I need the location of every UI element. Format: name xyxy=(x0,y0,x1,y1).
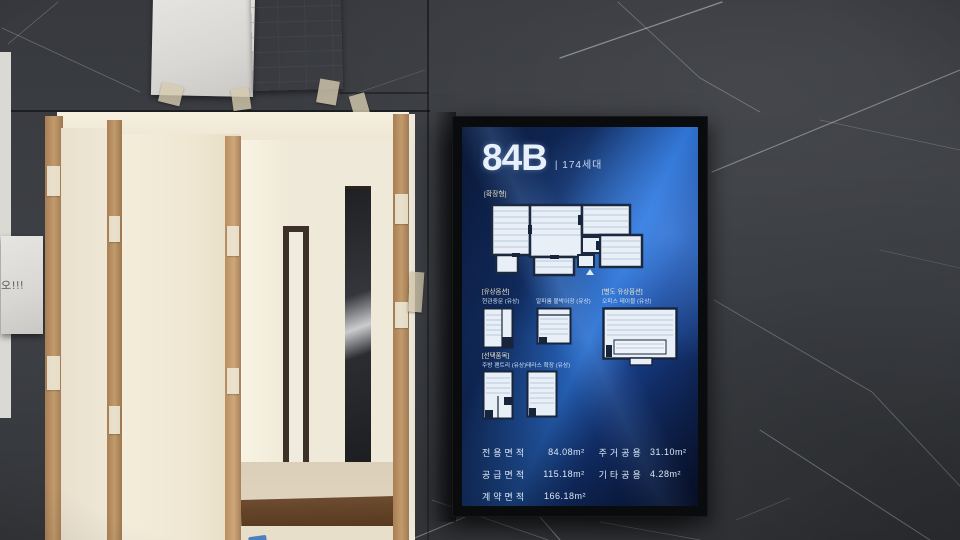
hallway-interior xyxy=(241,140,395,540)
stats-row-3: 계약면적 166.18m² xyxy=(482,485,680,506)
stat-supply-value: 115.18m² xyxy=(539,469,584,479)
guard-tape-right-1 xyxy=(395,194,408,224)
stat-contract-label: 계약면적 xyxy=(482,490,540,503)
guard-tape-2 xyxy=(109,406,120,434)
masking-tape-frame xyxy=(408,272,425,313)
separate-item-1-label: 오피스 테이블 (유상) xyxy=(602,297,651,305)
unit-type-title: 84B xyxy=(482,139,547,176)
doorway xyxy=(45,106,415,540)
guard-tape-left-1 xyxy=(47,166,60,196)
section-select-header: [선택품목] xyxy=(482,351,509,360)
paid-item-1-label: 현관중문 (유상) xyxy=(482,297,519,305)
hallway-lit-wall xyxy=(241,140,289,470)
stat-supply-label: 공급면적 xyxy=(482,468,539,481)
stats-row-1: 전용면적 84.08m² 주거공용 31.10m² xyxy=(482,441,680,463)
paid-item-1-thumbnail xyxy=(482,307,514,349)
paid-item-2-thumbnail xyxy=(536,307,572,345)
masking-tape-3 xyxy=(316,78,340,105)
stat-res-common-value: 31.10m² xyxy=(650,447,680,457)
photo-scene: 오!!! xyxy=(0,0,960,540)
guard-tape-right-2 xyxy=(395,302,408,328)
corner-guard-2 xyxy=(225,136,241,540)
guard-tape-4 xyxy=(227,368,239,394)
stat-res-common-label: 주거공용 xyxy=(599,446,650,459)
guard-tape-left-2 xyxy=(47,356,60,390)
section-separate-header: [별도 유상옵션] xyxy=(602,287,643,296)
select-item-2-thumbnail xyxy=(526,370,558,418)
note-paper: 오!!! xyxy=(1,236,43,334)
stat-contract-value: 166.18m² xyxy=(540,491,586,501)
stat-other-common-value: 4.28m² xyxy=(650,469,680,479)
select-item-1-label: 주방 팬트리 (유상) xyxy=(482,361,526,369)
note-text: 오!!! xyxy=(1,277,25,294)
stats-row-2: 공급면적 115.18m² 기타공용 4.28m² xyxy=(482,463,680,485)
stat-exclusive-value: 84.08m² xyxy=(539,447,584,457)
main-floorplan xyxy=(482,197,658,283)
corner-guard-1 xyxy=(107,120,122,540)
taped-paper-2 xyxy=(251,0,344,91)
display-panel: 84B | 174세대 [확장형] xyxy=(452,116,708,517)
area-stats: 전용면적 84.08m² 주거공용 31.10m² 공급면적 115.18m² … xyxy=(482,441,680,506)
select-item-1-thumbnail xyxy=(482,370,514,420)
threshold xyxy=(241,496,395,530)
guard-tape-3 xyxy=(227,226,239,256)
mirror xyxy=(345,186,371,467)
unit-info-screen[interactable]: 84B | 174세대 [확장형] xyxy=(462,127,698,506)
unit-count-label: | 174세대 xyxy=(555,156,602,176)
wall-protection-strip xyxy=(0,52,11,418)
marble-seam-horizontal xyxy=(340,92,428,94)
door-frame-right-edge xyxy=(409,114,415,540)
unit-title-row: 84B | 174세대 xyxy=(482,139,602,176)
separate-item-1-thumbnail xyxy=(602,307,678,367)
guard-tape-1 xyxy=(109,216,120,242)
door-panel-main[interactable] xyxy=(122,134,240,540)
select-item-2-label: 테라스 확장 (유상) xyxy=(526,361,570,369)
marble-seam-vertical xyxy=(427,0,429,540)
stat-exclusive-label: 전용면적 xyxy=(482,446,539,459)
paid-item-2-label: 알파룸 붙박이장 (유상) xyxy=(536,297,591,305)
stat-other-common-label: 기타공용 xyxy=(599,468,650,481)
section-paid-header: [유상옵션] xyxy=(482,287,509,296)
